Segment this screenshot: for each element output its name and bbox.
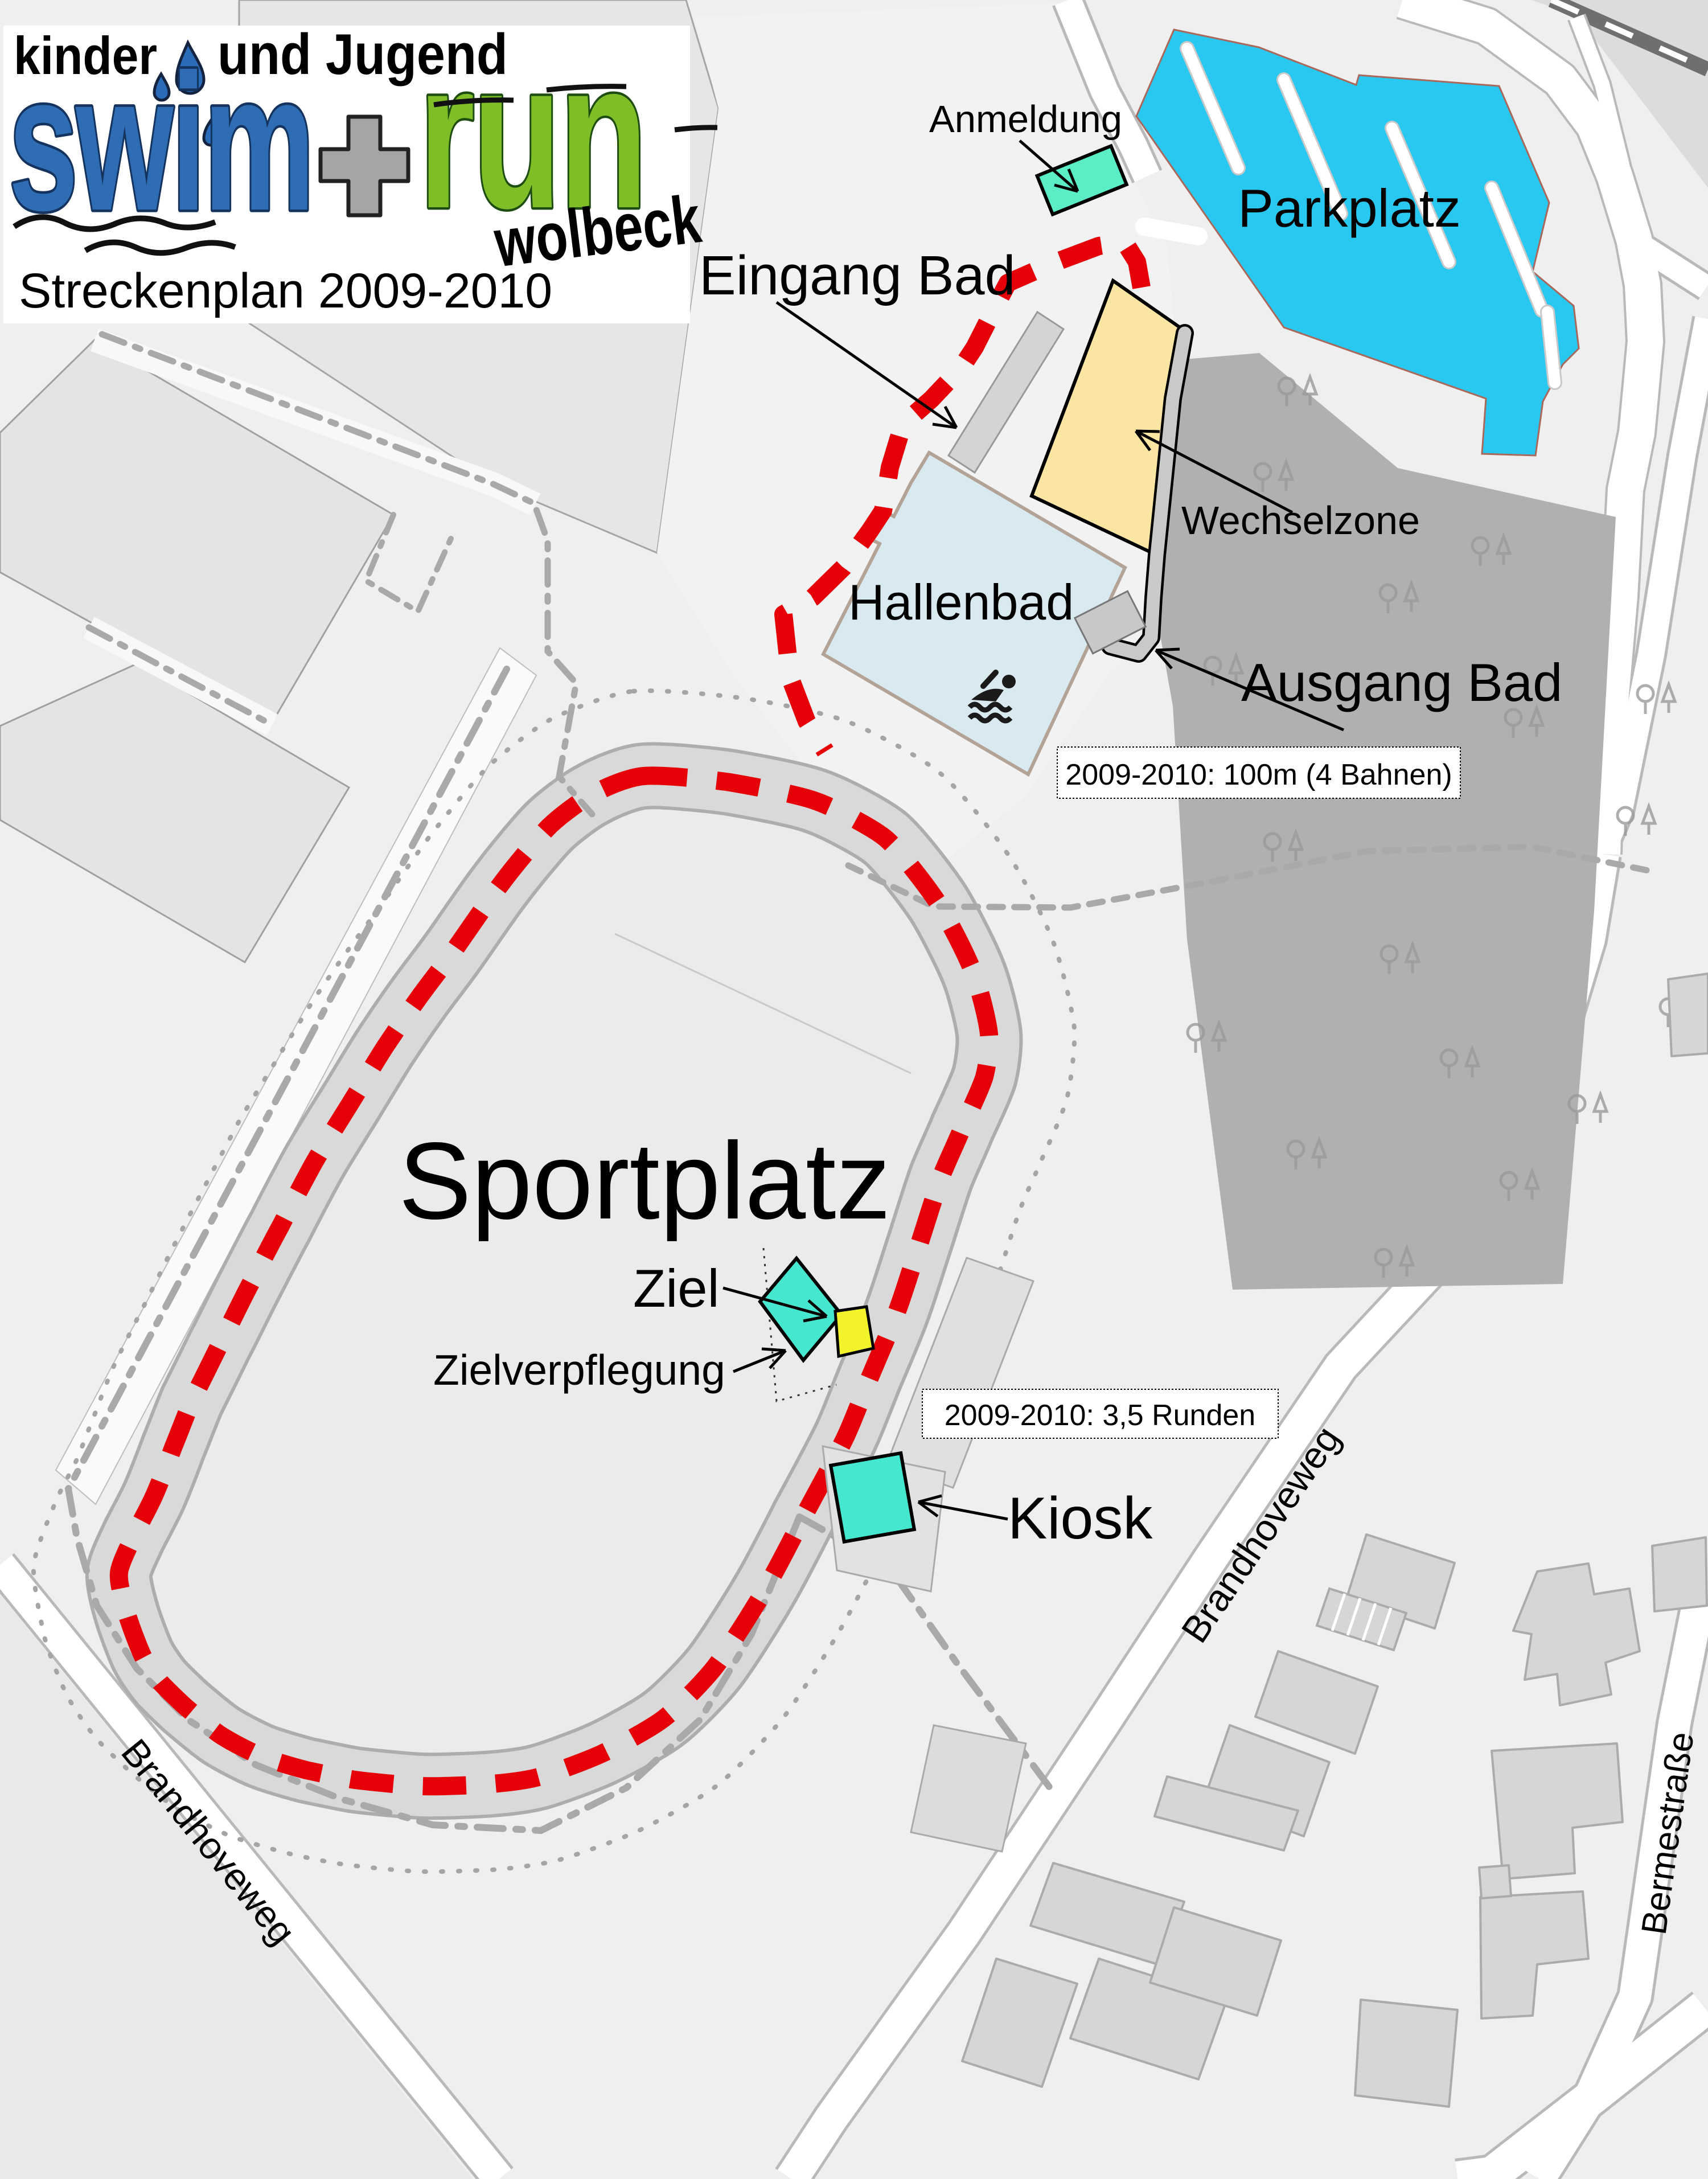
svg-text:Sportplatz: Sportplatz <box>399 1119 890 1242</box>
svg-text:Parkplatz: Parkplatz <box>1238 178 1461 238</box>
svg-text:Kiosk: Kiosk <box>1008 1486 1153 1552</box>
svg-text:Hallenbad: Hallenbad <box>848 574 1074 630</box>
svg-text:Anmeldung: Anmeldung <box>929 98 1122 141</box>
svg-text:Eingang Bad: Eingang Bad <box>699 244 1016 306</box>
svg-text:Ziel: Ziel <box>633 1258 719 1318</box>
svg-text:2009-2010: 3,5 Runden: 2009-2010: 3,5 Runden <box>945 1399 1255 1432</box>
svg-text:Zielverpflegung: Zielverpflegung <box>433 1346 725 1394</box>
svg-text:Ausgang Bad: Ausgang Bad <box>1241 653 1562 712</box>
svg-text:Streckenplan 2009-2010: Streckenplan 2009-2010 <box>19 264 552 318</box>
svg-text:Wechselzone: Wechselzone <box>1181 498 1420 543</box>
svg-text:2009-2010: 100m (4 Bahnen): 2009-2010: 100m (4 Bahnen) <box>1065 758 1452 791</box>
